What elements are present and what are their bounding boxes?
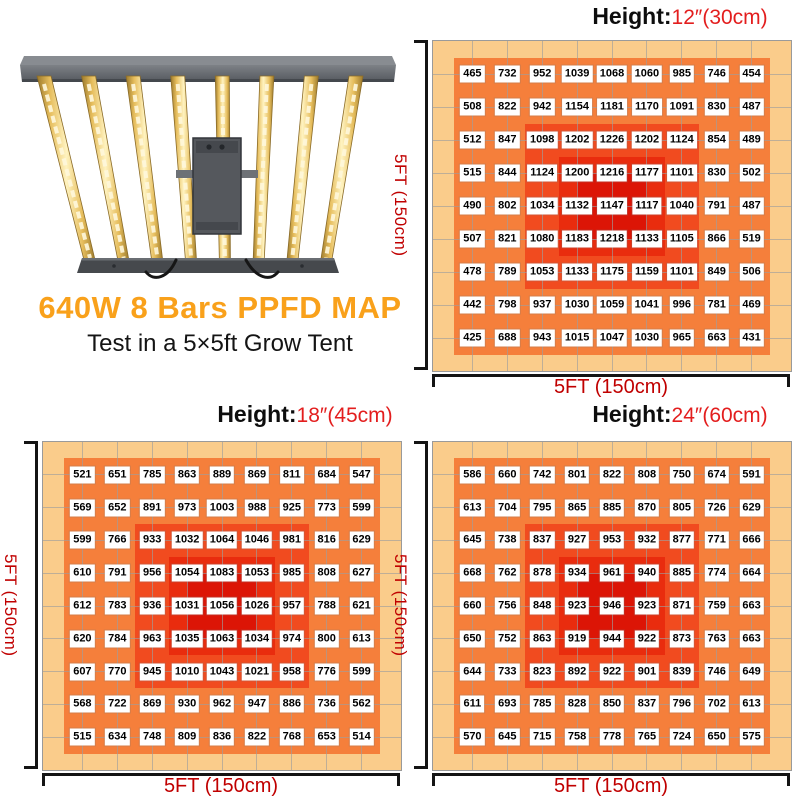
height-label: Height: xyxy=(592,401,671,427)
ppfd-value: 1064 xyxy=(207,532,237,549)
ppfd-value: 664 xyxy=(739,565,763,582)
ppfd-value: 863 xyxy=(530,630,554,647)
ppfd-value: 844 xyxy=(495,165,519,182)
ppfd-value: 877 xyxy=(670,532,694,549)
ppfd-value: 784 xyxy=(105,630,129,647)
ppfd-value: 568 xyxy=(70,696,94,713)
ppfd-value: 885 xyxy=(600,499,624,516)
ppfd-value: 702 xyxy=(705,696,729,713)
ppfd-value: 889 xyxy=(210,466,234,483)
ppfd-value: 871 xyxy=(670,598,694,615)
ppfd-value: 666 xyxy=(739,532,763,549)
ppfd-value: 688 xyxy=(495,330,519,347)
ppfd-value: 1216 xyxy=(597,165,627,182)
height-value: 18″(45cm) xyxy=(297,404,393,427)
ppfd-value: 771 xyxy=(705,532,729,549)
ppfd-value: 811 xyxy=(280,466,304,483)
ppfd-value: 650 xyxy=(705,729,729,746)
ppfd-value: 1159 xyxy=(632,264,662,281)
ppfd-value: 750 xyxy=(670,466,694,483)
page-subtitle: Test in a 5×5ft Grow Tent xyxy=(20,330,420,358)
ppfd-value: 988 xyxy=(245,499,269,516)
ppfd-value: 937 xyxy=(530,297,554,314)
ppfd-value: 1101 xyxy=(667,165,697,182)
ppfd-value: 981 xyxy=(280,532,304,549)
ppfd-value: 956 xyxy=(140,565,164,582)
ppfd-value: 1015 xyxy=(562,330,592,347)
ppfd-value: 515 xyxy=(70,729,94,746)
ppfd-heatmap-12in: 4657329521039106810609857464545088229421… xyxy=(432,40,792,372)
heatmap-24in-title: Height:24″(60cm) xyxy=(505,401,800,428)
ppfd-value: 502 xyxy=(739,165,763,182)
ppfd-value: 1047 xyxy=(597,330,627,347)
ppfd-value: 1124 xyxy=(527,165,557,182)
ppfd-value: 651 xyxy=(105,466,129,483)
ppfd-value: 776 xyxy=(315,663,339,680)
ppfd-value: 848 xyxy=(530,598,554,615)
ppfd-value: 629 xyxy=(349,532,373,549)
heatmap-12in-title: Height:12″(30cm) xyxy=(505,3,800,30)
ppfd-value: 762 xyxy=(495,565,519,582)
ppfd-value: 957 xyxy=(280,598,304,615)
ppfd-value: 942 xyxy=(530,99,554,116)
height-value: 24″(60cm) xyxy=(672,404,768,427)
ppfd-value: 1177 xyxy=(632,165,662,182)
y-axis-label: 5FT (150cm) xyxy=(390,40,410,370)
x-axis-label: 5FT (150cm) xyxy=(432,376,790,399)
ppfd-value: 733 xyxy=(495,663,519,680)
ppfd-value: 828 xyxy=(565,696,589,713)
ppfd-value: 752 xyxy=(495,630,519,647)
ppfd-value: 715 xyxy=(530,729,554,746)
ppfd-value: 663 xyxy=(739,630,763,647)
ppfd-value: 1021 xyxy=(242,663,272,680)
ppfd-value: 778 xyxy=(600,729,624,746)
ppfd-value: 886 xyxy=(280,696,304,713)
ppfd-value: 634 xyxy=(105,729,129,746)
x-axis-label: 5FT (150cm) xyxy=(432,775,790,798)
ppfd-value: 801 xyxy=(565,466,589,483)
ppfd-value: 873 xyxy=(670,630,694,647)
ppfd-value: 1034 xyxy=(527,198,557,215)
ppfd-value: 768 xyxy=(280,729,304,746)
ppfd-value: 781 xyxy=(705,297,729,314)
ppfd-value: 821 xyxy=(495,231,519,248)
ppfd-value: 645 xyxy=(460,532,484,549)
ppfd-value: 1053 xyxy=(527,264,557,281)
ppfd-value: 736 xyxy=(315,696,339,713)
ppfd-value: 947 xyxy=(245,696,269,713)
ppfd-value: 469 xyxy=(739,297,763,314)
ppfd-value: 610 xyxy=(70,565,94,582)
ppfd-value: 773 xyxy=(315,499,339,516)
ppfd-value: 620 xyxy=(70,630,94,647)
ppfd-value: 963 xyxy=(140,630,164,647)
ppfd-value: 621 xyxy=(349,598,373,615)
ppfd-value: 645 xyxy=(495,729,519,746)
ppfd-value: 653 xyxy=(315,729,339,746)
ppfd-value: 800 xyxy=(315,630,339,647)
ppfd-value: 569 xyxy=(70,499,94,516)
ppfd-value: 431 xyxy=(739,330,763,347)
ppfd-value: 919 xyxy=(565,630,589,647)
ppfd-value: 742 xyxy=(530,466,554,483)
y-axis-label: 5FT (150cm) xyxy=(390,441,410,769)
ppfd-value: 599 xyxy=(349,499,373,516)
ppfd-value: 891 xyxy=(140,499,164,516)
ppfd-value: 489 xyxy=(739,132,763,149)
ppfd-value: 1175 xyxy=(597,264,627,281)
ppfd-value: 953 xyxy=(600,532,624,549)
ppfd-value: 930 xyxy=(175,696,199,713)
ppfd-value: 785 xyxy=(530,696,554,713)
ppfd-value: 785 xyxy=(140,466,164,483)
ppfd-value: 1202 xyxy=(632,132,662,149)
ppfd-value: 1040 xyxy=(667,198,697,215)
ppfd-heatmap-24in: 5866607428018228087506745916137047958658… xyxy=(432,441,792,771)
ppfd-value: 1170 xyxy=(632,99,662,116)
ppfd-value: 770 xyxy=(105,663,129,680)
ppfd-value: 644 xyxy=(460,663,484,680)
ppfd-value: 869 xyxy=(140,696,164,713)
x-axis-label: 5FT (150cm) xyxy=(42,775,400,798)
ppfd-value: 922 xyxy=(635,630,659,647)
ppfd-value: 791 xyxy=(705,198,729,215)
y-axis-label: 5FT (150cm) xyxy=(0,441,20,769)
ppfd-value: 599 xyxy=(349,663,373,680)
ppfd-value: 1054 xyxy=(172,565,202,582)
ppfd-value: 1132 xyxy=(562,198,592,215)
ppfd-value: 816 xyxy=(315,532,339,549)
ppfd-value: 974 xyxy=(280,630,304,647)
ppfd-value: 627 xyxy=(349,565,373,582)
ppfd-value: 863 xyxy=(175,466,199,483)
heatmap-18in-title: Height:18″(45cm) xyxy=(130,401,480,428)
ppfd-value: 802 xyxy=(495,198,519,215)
ppfd-value: 865 xyxy=(565,499,589,516)
ppfd-value: 442 xyxy=(460,297,484,314)
page-title: 640W 8 Bars PPFD MAP xyxy=(20,290,420,326)
ppfd-value: 985 xyxy=(280,565,304,582)
ppfd-value: 663 xyxy=(739,598,763,615)
ppfd-value: 940 xyxy=(635,565,659,582)
ppfd-value: 869 xyxy=(245,466,269,483)
ppfd-value: 788 xyxy=(315,598,339,615)
ppfd-value: 612 xyxy=(70,598,94,615)
ppfd-value: 591 xyxy=(739,466,763,483)
ppfd-value: 943 xyxy=(530,330,554,347)
ppfd-value: 962 xyxy=(210,696,234,713)
ppfd-value: 932 xyxy=(635,532,659,549)
ppfd-value: 1202 xyxy=(562,132,592,149)
ppfd-value: 1063 xyxy=(207,630,237,647)
ppfd-value: 1147 xyxy=(597,198,627,215)
ppfd-value: 822 xyxy=(245,729,269,746)
ppfd-value: 1031 xyxy=(172,598,202,615)
ppfd-value: 996 xyxy=(670,297,694,314)
ppfd-heatmap-18in: 5216517858638898698116845475696528919731… xyxy=(42,441,402,771)
ppfd-value: 1034 xyxy=(242,630,272,647)
ppfd-value: 1218 xyxy=(597,231,627,248)
ppfd-value: 791 xyxy=(105,565,129,582)
ppfd-value: 1032 xyxy=(172,532,202,549)
ppfd-value: 1105 xyxy=(667,231,697,248)
ppfd-value: 722 xyxy=(105,696,129,713)
ppfd-value: 1226 xyxy=(597,132,627,149)
ppfd-value: 805 xyxy=(670,499,694,516)
ppfd-value: 508 xyxy=(460,99,484,116)
ppfd-value: 945 xyxy=(140,663,164,680)
ppfd-value: 454 xyxy=(739,66,763,83)
ppfd-value: 1056 xyxy=(207,598,237,615)
ppfd-value: 1091 xyxy=(667,99,697,116)
ppfd-value: 923 xyxy=(565,598,589,615)
ppfd-value: 809 xyxy=(175,729,199,746)
ppfd-value: 1124 xyxy=(667,132,697,149)
ppfd-value: 839 xyxy=(670,663,694,680)
ppfd-value: 837 xyxy=(635,696,659,713)
height-label: Height: xyxy=(217,401,296,427)
ppfd-value: 1181 xyxy=(597,99,627,116)
ppfd-value: 952 xyxy=(530,66,554,83)
ppfd-value: 1200 xyxy=(562,165,592,182)
ppfd-value: 822 xyxy=(495,99,519,116)
ppfd-value: 650 xyxy=(460,630,484,647)
ppfd-value: 613 xyxy=(349,630,373,647)
ppfd-value: 922 xyxy=(600,663,624,680)
ppfd-value: 847 xyxy=(495,132,519,149)
ppfd-value: 1039 xyxy=(562,66,592,83)
ppfd-value: 1060 xyxy=(632,66,662,83)
ppfd-value: 660 xyxy=(495,466,519,483)
ppfd-value: 866 xyxy=(705,231,729,248)
ppfd-value: 487 xyxy=(739,198,763,215)
ppfd-value: 1068 xyxy=(597,66,627,83)
y-dimension-bracket xyxy=(414,40,428,370)
ppfd-value: 693 xyxy=(495,696,519,713)
ppfd-value: 759 xyxy=(705,598,729,615)
ppfd-value: 849 xyxy=(705,264,729,281)
ppfd-value: 613 xyxy=(739,696,763,713)
ppfd-value: 660 xyxy=(460,598,484,615)
ppfd-value: 512 xyxy=(460,132,484,149)
ppfd-value: 892 xyxy=(565,663,589,680)
ppfd-value: 1035 xyxy=(172,630,202,647)
ppfd-value: 958 xyxy=(280,663,304,680)
ppfd-value: 1101 xyxy=(667,264,697,281)
ppfd-value: 674 xyxy=(705,466,729,483)
ppfd-value: 1030 xyxy=(632,330,662,347)
ppfd-value: 1026 xyxy=(242,598,272,615)
ppfd-value: 823 xyxy=(530,663,554,680)
ppfd-value: 766 xyxy=(105,532,129,549)
ppfd-value: 1059 xyxy=(597,297,627,314)
ppfd-value: 649 xyxy=(739,663,763,680)
ppfd-value: 961 xyxy=(600,565,624,582)
ppfd-value: 519 xyxy=(739,231,763,248)
ppfd-value: 1133 xyxy=(632,231,662,248)
ppfd-value: 756 xyxy=(495,598,519,615)
ppfd-value: 1010 xyxy=(172,663,202,680)
ppfd-value: 1133 xyxy=(562,264,592,281)
fixture-top-rail xyxy=(20,56,396,82)
ppfd-value: 878 xyxy=(530,565,554,582)
ppfd-value: 837 xyxy=(530,532,554,549)
ppfd-value: 854 xyxy=(705,132,729,149)
ppfd-value: 514 xyxy=(349,729,373,746)
ppfd-value: 724 xyxy=(670,729,694,746)
ppfd-value: 738 xyxy=(495,532,519,549)
ppfd-value: 663 xyxy=(705,330,729,347)
ppfd-value: 927 xyxy=(565,532,589,549)
ppfd-value: 1041 xyxy=(632,297,662,314)
ppfd-value: 798 xyxy=(495,297,519,314)
ppfd-value: 746 xyxy=(705,663,729,680)
ppfd-value: 1098 xyxy=(527,132,557,149)
ppfd-value: 487 xyxy=(739,99,763,116)
ppfd-value: 758 xyxy=(565,729,589,746)
ppfd-value: 830 xyxy=(705,99,729,116)
ppfd-value: 808 xyxy=(635,466,659,483)
ppfd-value: 973 xyxy=(175,499,199,516)
ppfd-value: 783 xyxy=(105,598,129,615)
ppfd-value: 515 xyxy=(460,165,484,182)
ppfd-value: 746 xyxy=(705,66,729,83)
fixture-bottom-rail xyxy=(77,258,339,273)
ppfd-value: 830 xyxy=(705,165,729,182)
ppfd-value: 1083 xyxy=(207,565,237,582)
ppfd-value: 765 xyxy=(635,729,659,746)
ppfd-value: 822 xyxy=(600,466,624,483)
ppfd-value: 850 xyxy=(600,696,624,713)
ppfd-value: 607 xyxy=(70,663,94,680)
ppfd-value: 478 xyxy=(460,264,484,281)
ppfd-value: 901 xyxy=(635,663,659,680)
ppfd-value: 652 xyxy=(105,499,129,516)
ppfd-value: 586 xyxy=(460,466,484,483)
ppfd-value: 613 xyxy=(460,499,484,516)
ppfd-value: 1046 xyxy=(242,532,272,549)
ppfd-value: 570 xyxy=(460,729,484,746)
ppfd-value: 795 xyxy=(530,499,554,516)
ppfd-value: 1030 xyxy=(562,297,592,314)
ppfd-value: 732 xyxy=(495,66,519,83)
ppfd-value: 547 xyxy=(349,466,373,483)
ppfd-value: 1053 xyxy=(242,565,272,582)
ppfd-value: 763 xyxy=(705,630,729,647)
ppfd-value: 507 xyxy=(460,231,484,248)
y-dimension-bracket xyxy=(24,441,38,769)
ppfd-value: 465 xyxy=(460,66,484,83)
ppfd-value: 946 xyxy=(600,598,624,615)
ppfd-value: 490 xyxy=(460,198,484,215)
ppfd-value: 936 xyxy=(140,598,164,615)
ppfd-value: 1183 xyxy=(562,231,592,248)
ppfd-value: 599 xyxy=(70,532,94,549)
ppfd-value: 1003 xyxy=(207,499,237,516)
ppfd-value: 985 xyxy=(670,66,694,83)
height-value: 12″(30cm) xyxy=(672,6,768,29)
ppfd-value: 575 xyxy=(739,729,763,746)
ppfd-value: 1080 xyxy=(527,231,557,248)
ppfd-value: 1154 xyxy=(562,99,592,116)
ppfd-value: 748 xyxy=(140,729,164,746)
ppfd-value: 796 xyxy=(670,696,694,713)
ppfd-value: 425 xyxy=(460,330,484,347)
grow-light-fixture-image xyxy=(8,22,412,292)
y-dimension-bracket xyxy=(414,441,428,769)
ppfd-value: 774 xyxy=(705,565,729,582)
height-label: Height: xyxy=(592,3,671,29)
ppfd-value: 684 xyxy=(315,466,339,483)
ppfd-value: 944 xyxy=(600,630,624,647)
ppfd-value: 726 xyxy=(705,499,729,516)
ppfd-value: 808 xyxy=(315,565,339,582)
ppfd-value: 1117 xyxy=(632,198,661,215)
ppfd-value: 870 xyxy=(635,499,659,516)
ppfd-value: 506 xyxy=(739,264,763,281)
ppfd-value: 521 xyxy=(70,466,94,483)
ppfd-value: 934 xyxy=(565,565,589,582)
ppfd-value: 611 xyxy=(461,696,485,713)
ppfd-value: 836 xyxy=(210,729,234,746)
ppfd-value: 789 xyxy=(495,264,519,281)
page-title-text: 640W 8 Bars PPFD MAP xyxy=(38,290,401,325)
ppfd-value: 562 xyxy=(349,696,373,713)
ppfd-value: 923 xyxy=(635,598,659,615)
ppfd-value: 933 xyxy=(140,532,164,549)
ppfd-value: 704 xyxy=(495,499,519,516)
ppfd-value: 629 xyxy=(739,499,763,516)
ppfd-value: 1043 xyxy=(207,663,237,680)
ppfd-value: 885 xyxy=(670,565,694,582)
ppfd-value: 965 xyxy=(670,330,694,347)
ppfd-value: 668 xyxy=(460,565,484,582)
ppfd-value: 925 xyxy=(280,499,304,516)
